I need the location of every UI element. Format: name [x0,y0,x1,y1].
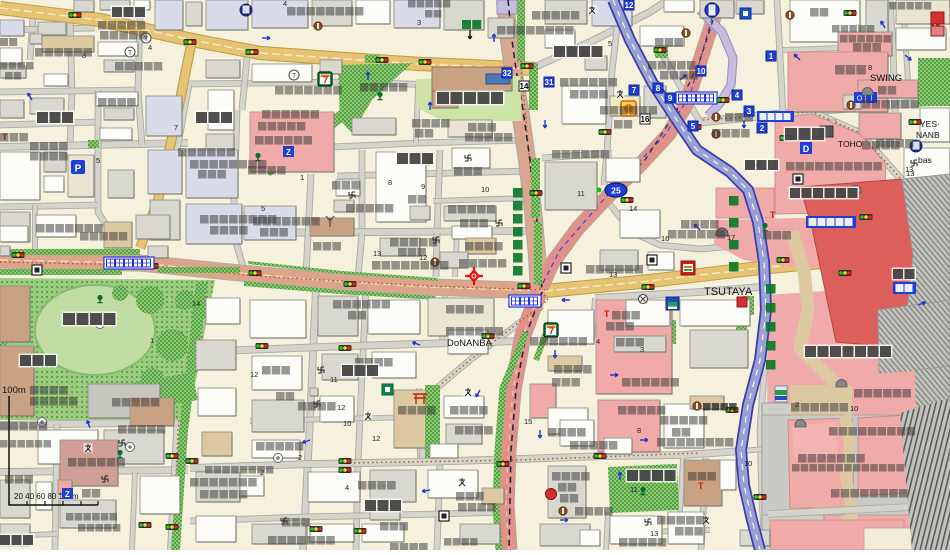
svg-text:Z: Z [286,148,291,157]
svg-text:10: 10 [697,67,706,76]
svg-text:D: D [803,144,810,154]
svg-text:7: 7 [174,123,178,132]
svg-text:T: T [604,309,610,319]
svg-text:T: T [128,48,133,57]
svg-text:10: 10 [481,185,489,194]
svg-text:P: P [75,164,82,175]
svg-text:8: 8 [82,51,86,60]
svg-text:12: 12 [337,403,345,412]
svg-text:10: 10 [343,419,351,428]
svg-text:Z: Z [65,490,70,499]
svg-text:5: 5 [96,156,100,165]
svg-text:T: T [698,481,704,491]
svg-text:12: 12 [250,370,258,379]
svg-text:17: 17 [727,233,735,242]
svg-text:11: 11 [630,485,638,494]
svg-text:4: 4 [735,91,740,100]
svg-text:3: 3 [417,18,421,27]
svg-text:14: 14 [192,299,200,308]
svg-text:TSUTAYA: TSUTAYA [704,286,753,298]
svg-text:8: 8 [388,178,392,187]
svg-text:16: 16 [661,234,669,243]
svg-text:12: 12 [419,253,427,262]
svg-text:7: 7 [549,326,554,336]
svg-text:25: 25 [611,186,621,196]
svg-text:12: 12 [625,1,634,10]
svg-text:8: 8 [637,426,641,435]
svg-text:16: 16 [641,115,650,124]
svg-text:12: 12 [372,434,380,443]
svg-text:3: 3 [747,107,752,116]
svg-text:8: 8 [868,63,872,72]
svg-text:32: 32 [503,69,512,78]
svg-text:5: 5 [691,122,696,131]
svg-text:1: 1 [300,173,304,182]
svg-text:T: T [292,71,297,80]
svg-text:5: 5 [608,39,612,48]
svg-text:15: 15 [524,417,532,426]
svg-text:8: 8 [656,84,661,93]
svg-text:T: T [770,210,776,220]
svg-text:14: 14 [629,204,637,213]
svg-text:13: 13 [609,270,617,279]
svg-text:SWING: SWING [870,73,902,84]
svg-text:5: 5 [261,204,265,213]
svg-text:NANB: NANB [916,130,940,140]
svg-text:DoNANBA: DoNANBA [447,338,493,349]
svg-text:10: 10 [850,404,858,413]
svg-text:TOHO: TOHO [838,139,863,149]
svg-text:2: 2 [795,400,799,409]
svg-text:1: 1 [150,336,154,345]
svg-text:11: 11 [577,189,585,198]
svg-text:4: 4 [283,0,287,8]
svg-text:1: 1 [769,52,774,61]
svg-text:4: 4 [596,337,600,346]
svg-text:7: 7 [632,86,637,95]
svg-text:9: 9 [668,94,673,103]
svg-text:2: 2 [260,468,264,477]
svg-text:13: 13 [650,529,658,538]
svg-text:11: 11 [330,375,338,384]
svg-text:2: 2 [760,124,765,133]
svg-text:14: 14 [520,82,529,91]
svg-text:3: 3 [640,345,644,354]
svg-text:YES·: YES· [920,119,940,129]
svg-text:2: 2 [298,453,302,462]
svg-text:13: 13 [905,165,913,174]
svg-text:10: 10 [744,459,752,468]
svg-text:100m: 100m [2,385,26,396]
svg-text:31: 31 [545,78,554,87]
svg-text:4: 4 [345,483,349,492]
svg-text:7: 7 [323,75,328,85]
svg-text:9: 9 [421,182,425,191]
svg-text:4: 4 [148,43,152,52]
svg-text:13: 13 [373,249,381,258]
svg-text:bas: bas [918,155,932,165]
